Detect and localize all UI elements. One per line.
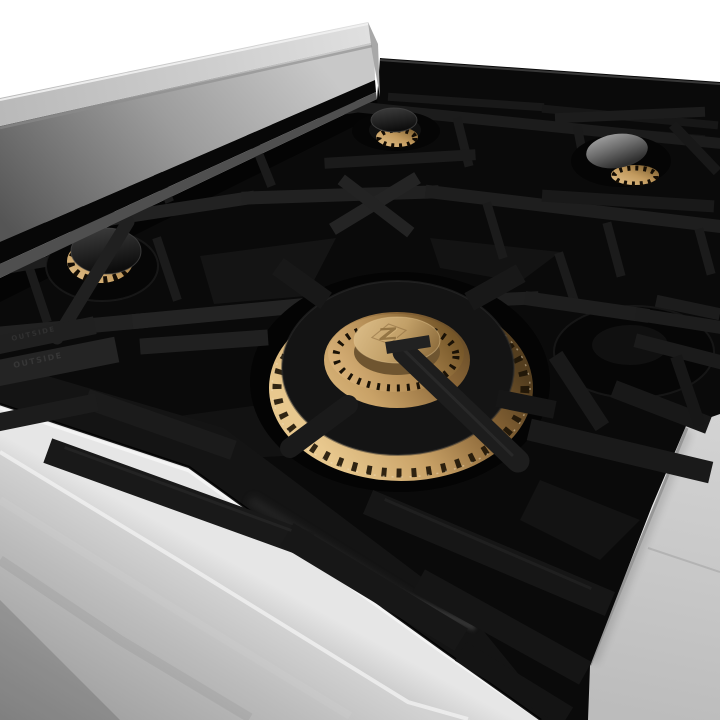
rangetop-photo-svg: Z Z OUTSIDE OUTSIDE <box>0 0 720 720</box>
grate-hook <box>392 342 424 347</box>
grate-arm <box>506 400 546 408</box>
product-photo: Z Z OUTSIDE OUTSIDE <box>0 0 720 720</box>
grate-bar <box>148 338 260 346</box>
burner-center: Z Z <box>250 272 550 492</box>
grate-bar <box>560 112 700 118</box>
